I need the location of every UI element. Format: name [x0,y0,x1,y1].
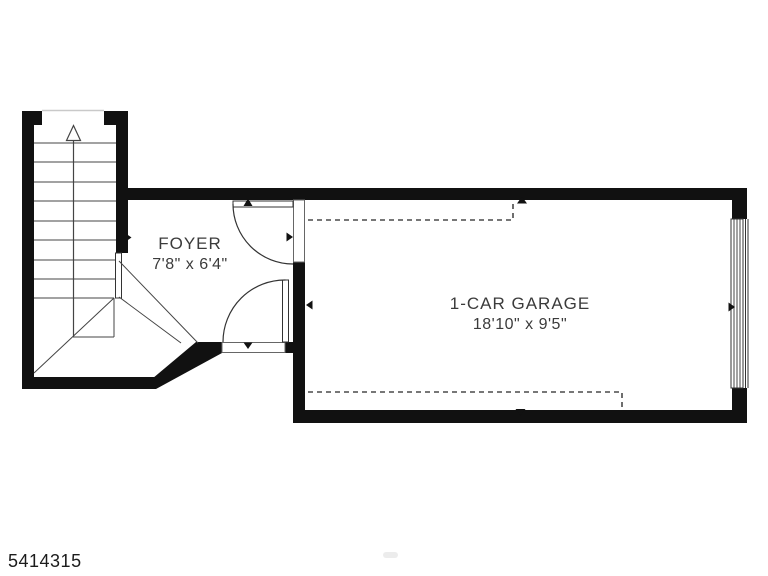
door-opening [294,200,305,262]
foyer-dimensions-label: 7'8" x 6'4" [115,255,265,275]
door-leaf [283,280,289,342]
floor-plan-drawing [0,0,768,576]
dashed-line-bottom [308,392,622,410]
watermark-smudge [383,552,398,558]
wall-north [116,188,747,200]
wall-stair-left [22,111,34,389]
door-opening [222,343,285,353]
door-swing-arc [223,280,286,342]
door-leaf [233,201,293,207]
foyer-room-label: FOYER [125,233,255,254]
garage-door [731,219,748,388]
door-foyer-entry [222,280,289,353]
floor-plan-image: FOYER 7'8" x 6'4" 1-CAR GARAGE 18'10" x … [0,0,768,576]
garage-dimensions-label: 18'10" x 9'5" [420,315,620,335]
garage-room-label: 1-CAR GARAGE [420,293,620,314]
wall-diagonal [140,342,222,389]
wall-stair-right [116,111,128,253]
wall-stair-bottom [22,377,156,389]
wall-garage-corner-se [732,388,747,413]
stair-up-arrow-icon [67,126,81,141]
wall-foyer-bottom-right [285,342,305,353]
marker-door-foyer-garage [287,233,294,242]
photo-id-label: 5414315 [8,551,82,572]
foyer-diagonal-lower [119,297,181,343]
marker-garage-side-wall [306,301,313,310]
wall-garage-corner-ne [732,200,747,219]
dashed-line-top [308,200,513,220]
